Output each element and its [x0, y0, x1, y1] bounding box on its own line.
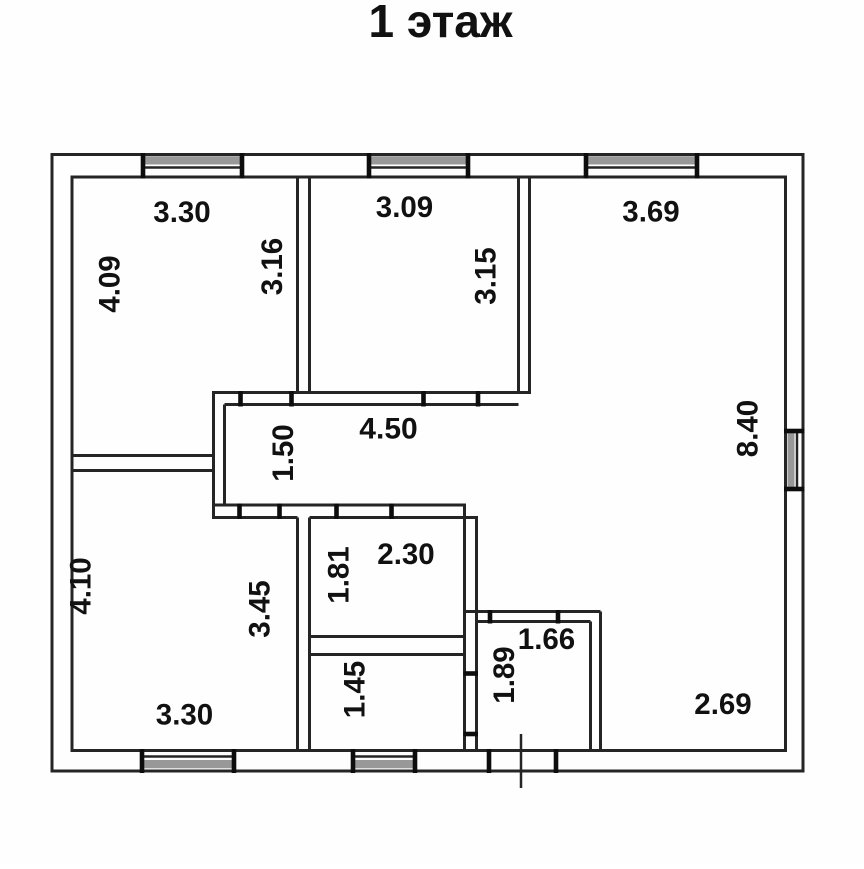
- svg-text:3.30: 3.30: [153, 196, 210, 229]
- svg-text:3.45: 3.45: [244, 580, 277, 637]
- svg-text:3.15: 3.15: [470, 247, 503, 304]
- svg-text:4.09: 4.09: [94, 255, 127, 312]
- svg-text:1.81: 1.81: [323, 546, 356, 603]
- svg-text:1.89: 1.89: [488, 646, 521, 703]
- svg-text:1.45: 1.45: [339, 661, 372, 718]
- svg-text:3.69: 3.69: [622, 196, 679, 229]
- svg-text:3.16: 3.16: [256, 238, 289, 295]
- svg-text:4.50: 4.50: [359, 413, 417, 446]
- svg-text:1 этаж: 1 этаж: [369, 0, 513, 47]
- svg-text:4.10: 4.10: [65, 557, 98, 614]
- svg-text:8.40: 8.40: [732, 400, 765, 457]
- svg-text:2.69: 2.69: [694, 688, 751, 721]
- svg-text:2.30: 2.30: [377, 538, 434, 571]
- svg-text:1.50: 1.50: [267, 424, 300, 481]
- svg-text:1.66: 1.66: [518, 623, 575, 656]
- svg-text:3.09: 3.09: [376, 191, 433, 224]
- svg-text:3.30: 3.30: [156, 699, 213, 732]
